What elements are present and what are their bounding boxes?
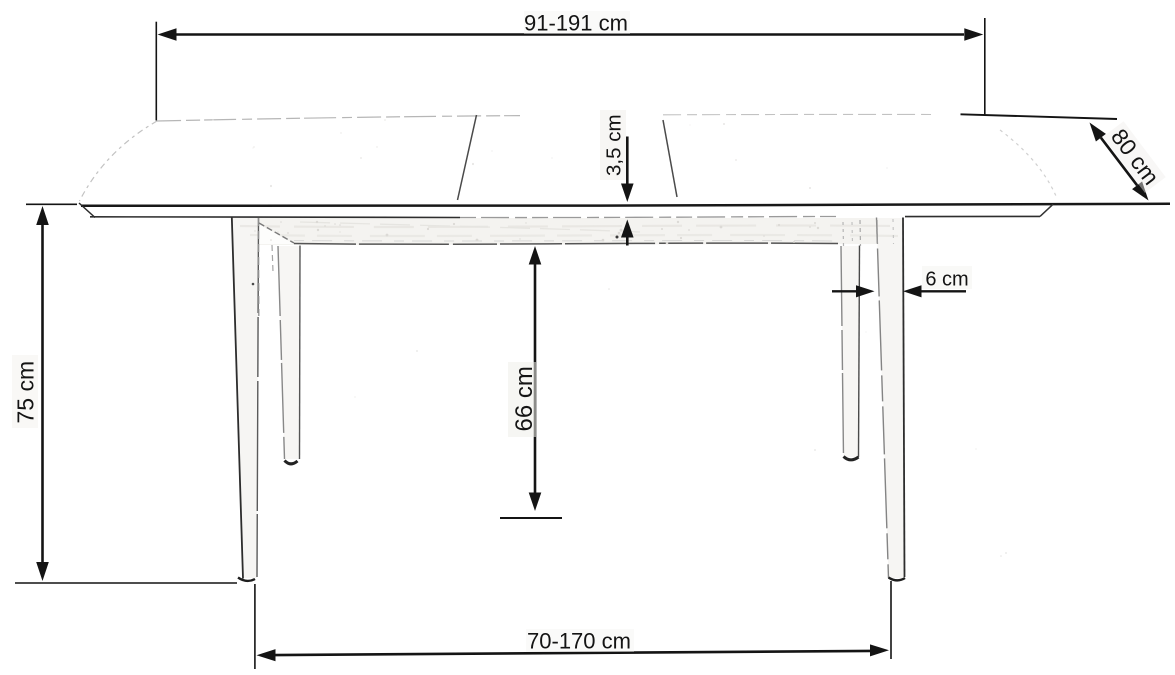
svg-text:70-170 cm: 70-170 cm	[527, 629, 631, 654]
svg-text:66 cm: 66 cm	[511, 366, 538, 431]
svg-text:6 cm: 6 cm	[925, 269, 968, 291]
svg-text:91-191 cm: 91-191 cm	[524, 11, 628, 36]
svg-text:75 cm: 75 cm	[13, 361, 39, 424]
svg-text:3,5 cm: 3,5 cm	[603, 114, 626, 176]
